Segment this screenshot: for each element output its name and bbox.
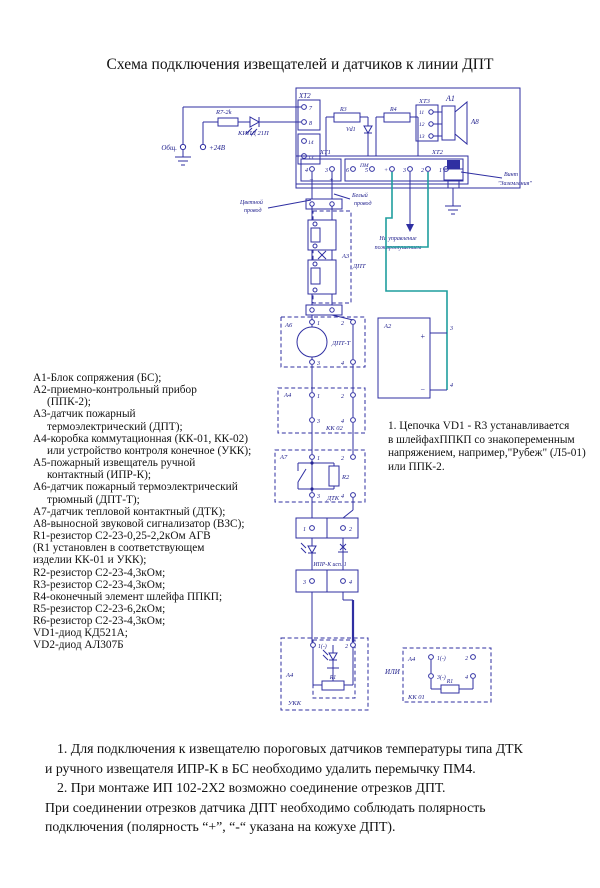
label-colored-wire: Цветной [239,199,263,206]
resistor-r4 [384,113,410,122]
note-line: 1. Цепочка VD1 - R3 устанавливается [388,420,588,434]
terminal-label: 3(-) [436,674,446,681]
led-vd2-icon [301,543,316,553]
block-a7-dtk: A7 1 2 3 4 [275,450,365,518]
label-a1: A1 [445,94,455,103]
terminal-label: 2 [421,168,424,174]
label-ground-screw-2: "Заземления" [498,181,532,187]
terminal-label: 1 [439,168,442,174]
legend-line: R3-резистор С2-23-4,3кОм; [33,579,283,591]
note-line: в шлейфахППКП со знакопеременным [388,434,588,448]
note-line: подключения (полярность “+”, “-“ указана… [45,817,575,837]
label-dpt: ДПТ [352,263,366,270]
label-fire-control-2: пожаротушением [375,245,422,251]
a2-minus: − [420,385,425,394]
block-a2-ppk2: A2 + − 3 4 [378,318,453,398]
label-24v: +24В [209,144,226,152]
terminal-label: 14 [308,139,314,146]
label-vd1: Vd1 [346,127,356,133]
label-or: ИЛИ [384,668,401,676]
dptt-sensor-icon [297,327,327,357]
note-line: и ручного извещателя ИПР-К в БС необходи… [45,759,575,779]
terminal-label: 3 [449,326,453,332]
terminal-label: + [384,168,388,174]
terminal-label: 8 [309,121,312,127]
terminal-label: 2 [341,321,344,327]
label-common: Общ. [161,144,177,152]
diode-vd1-icon [364,126,372,133]
terminal-label: 1 [317,321,320,327]
label-ground-screw: Винт [504,172,519,178]
block-a6-dptt: A6 1 2 3 4 ДПТ-Т [281,317,365,392]
label-a6: A6 [284,322,293,329]
note-line: При соединении отрезков датчика ДПТ необ… [45,798,575,818]
label-kk02: КК 02 [325,425,344,432]
ground-screw: Винт "Заземления" [444,160,532,214]
legend-line: R5-резистор С2-23-6,2кОм; [33,603,283,615]
dpt-element-2 [308,260,336,294]
resistor-r1 [322,681,344,690]
loop-elements-r3-vd1-r4: R3 R4 Vd1 [326,106,418,156]
note-vd1-r3: 1. Цепочка VD1 - R3 устанавливается в шл… [388,420,588,474]
label-a4-kk01: A4 [407,656,416,663]
terminal-label: 1 [317,456,320,462]
legend-line: А8-выносной звуковой сигнализатор (ВЗС); [33,518,283,530]
terminal-label: 1(-) [437,655,446,662]
terminal-label: 1(-) [318,643,327,650]
label-white-wire: Белый [351,192,368,199]
terminal-label: 2 [345,644,348,650]
label-a8: A8 [470,118,479,126]
label-xt3: XT3 [418,98,431,105]
terminal-label: 4 [341,493,344,500]
speaker-icon [455,102,467,144]
note-line: 2. При монтаже ИП 102-2Х2 возможно соеди… [45,778,575,798]
legend-line: контактный (ИПР-К); [33,469,283,481]
terminal-label: 4 [465,674,468,681]
legend-line: А5-пожарный извещатель ручной [33,457,283,469]
schematic-page: Схема подключения извещателей и датчиков… [0,0,600,888]
block-a4-kk01: A4 1(-) 2 3(-) 4 R1 КК 01 [403,648,491,702]
label-kk01: КК 01 [407,694,425,701]
label-colored-wire-2: провод [244,207,261,214]
label-xt2-bottom: XT2 [431,149,444,156]
thermal-contact-icon [298,463,312,489]
ground-symbol-left [175,150,191,165]
resistor-r3 [334,113,360,122]
legend-line: А2-приемно-контрольный прибор [33,384,283,396]
legend-line: R1-резистор С2-23-0,25-2,2кОм АГВ [33,530,283,542]
terminal-label: 3 [316,494,320,500]
terminal-label: 4 [450,382,453,389]
legend-line: трюмный (ДПТ-Т); [33,494,283,506]
terminal-label: 4 [349,579,352,586]
label-xt2-left: XT2 [298,92,311,100]
note-line: или ППК-2. [388,461,588,475]
bottom-notes: 1. Для подключения к извещателю пороговы… [45,739,575,837]
terminal-label: 13 [419,134,425,140]
terminal-label: 3 [402,168,406,174]
note-line: 1. Для подключения к извещателю пороговы… [45,739,575,759]
label-ukk: УКК [288,700,302,707]
legend-line: А4-коробка коммутационная (КК-01, КК-02) [33,433,283,445]
label-dtk: ДТК [326,495,340,502]
label-xt1: XT1 [319,149,331,156]
label-led-type: КИПД 21П [237,130,270,137]
signal-loop-teal [386,172,447,390]
terminal-label: 4 [341,360,344,367]
label-r4: R4 [389,106,397,113]
label-a2: A2 [383,323,392,330]
label-dptt: ДПТ-Т [331,340,351,347]
label-r7: R7-2k [215,109,232,116]
label-r3: R3 [339,107,347,113]
terminal-label: 4 [341,418,344,425]
legend-line: (R1 установлен в соответствующем [33,542,283,554]
power-input-circuit: R7-2k КИПД 21П Общ. +24В [161,107,301,165]
terminal-label: 3 [316,419,320,425]
legend-line: изделии КК-01 и УКК); [33,554,283,566]
block-a4-ukk: A4 1(-) 2 R1 УКК [281,638,368,710]
arrow-down-icon [406,224,414,232]
terminal-label: 2 [341,394,344,400]
label-a4-ukk: A4 [285,672,294,679]
block-a5-iprk: 1 2 ИПР-К исп. 1 3 4 [296,518,358,643]
note-line: напряжением, например,"Рубеж" (Л5-01) [388,447,588,461]
label-r1: R1 [329,675,337,681]
label-a3: A3 [341,253,350,260]
block-a1-bs: A1 XT2 7 8 14 13 [296,88,520,188]
legend-line: R6-резистор С2-23-4,3кОм; [33,615,283,627]
legend-line: VD1-диод КД521А; [33,627,283,639]
legend-line: термоэлектрический (ДПТ); [33,421,283,433]
connector-xt3: XT3 11 12 13 [416,98,442,141]
legend-line: А6-датчик пожарный термоэлектрический [33,481,283,493]
terminal-label: 7 [309,106,313,112]
label-iprk: ИПР-К исп. 1 [312,562,346,568]
terminal-label: 4 [305,167,308,174]
resistor-r1-kk01 [441,685,459,693]
legend-line: VD2-диод АЛ307Б [33,639,283,651]
terminal-label: 11 [419,110,424,116]
terminal-label: 2 [349,527,352,533]
label-r1-kk01: R1 [446,679,454,685]
legend-line: А7-датчик тепловой контактный (ДТК); [33,506,283,518]
legend-line: (ППК-2); [33,396,283,408]
terminal-label: 3 [316,361,320,367]
block-a8-sounder: A8 [442,102,479,144]
legend-line: R2-резистор С2-23-4,3кОм; [33,567,283,579]
dpt-element-1 [308,220,336,250]
terminal-label: 3 [324,168,328,174]
terminal-label: 12 [419,122,425,128]
resistor-r7 [218,118,238,126]
resistor-r2 [312,463,339,489]
terminal-label: 6 [346,168,349,174]
block-a4-kk02: A4 1 2 3 4 КК 02 [278,388,365,454]
label-white-wire-2: провод [354,200,371,207]
legend-line: А1-Блок сопряжения (БС); [33,372,283,384]
block-a3-dpt: A3 ДПТ [306,199,366,320]
terminal-label: 2 [341,456,344,462]
terminal-label: 1 [317,394,320,400]
component-legend: А1-Блок сопряжения (БС); А2-приемно-конт… [33,372,283,652]
a2-plus: + [420,332,425,341]
terminal-label: 3 [302,580,306,586]
label-a4: A4 [283,392,292,399]
terminal-label: 1 [303,527,306,533]
label-r2: R2 [341,474,350,481]
legend-line: или устройство контроля конечное (УКК); [33,445,283,457]
label-jumper-pm: ПМ [359,163,369,169]
legend-line: А3-датчик пожарный [33,408,283,420]
terminal-label: 2 [465,656,468,662]
label-fire-control: На управление [378,236,417,242]
connector-xt1-xt2-bottom: XT1 XT2 4 3 − + 6 5 + 3 2 1 ПМ [296,149,468,184]
legend-line: R4-оконечный элемент шлейфа ППКП; [33,591,283,603]
